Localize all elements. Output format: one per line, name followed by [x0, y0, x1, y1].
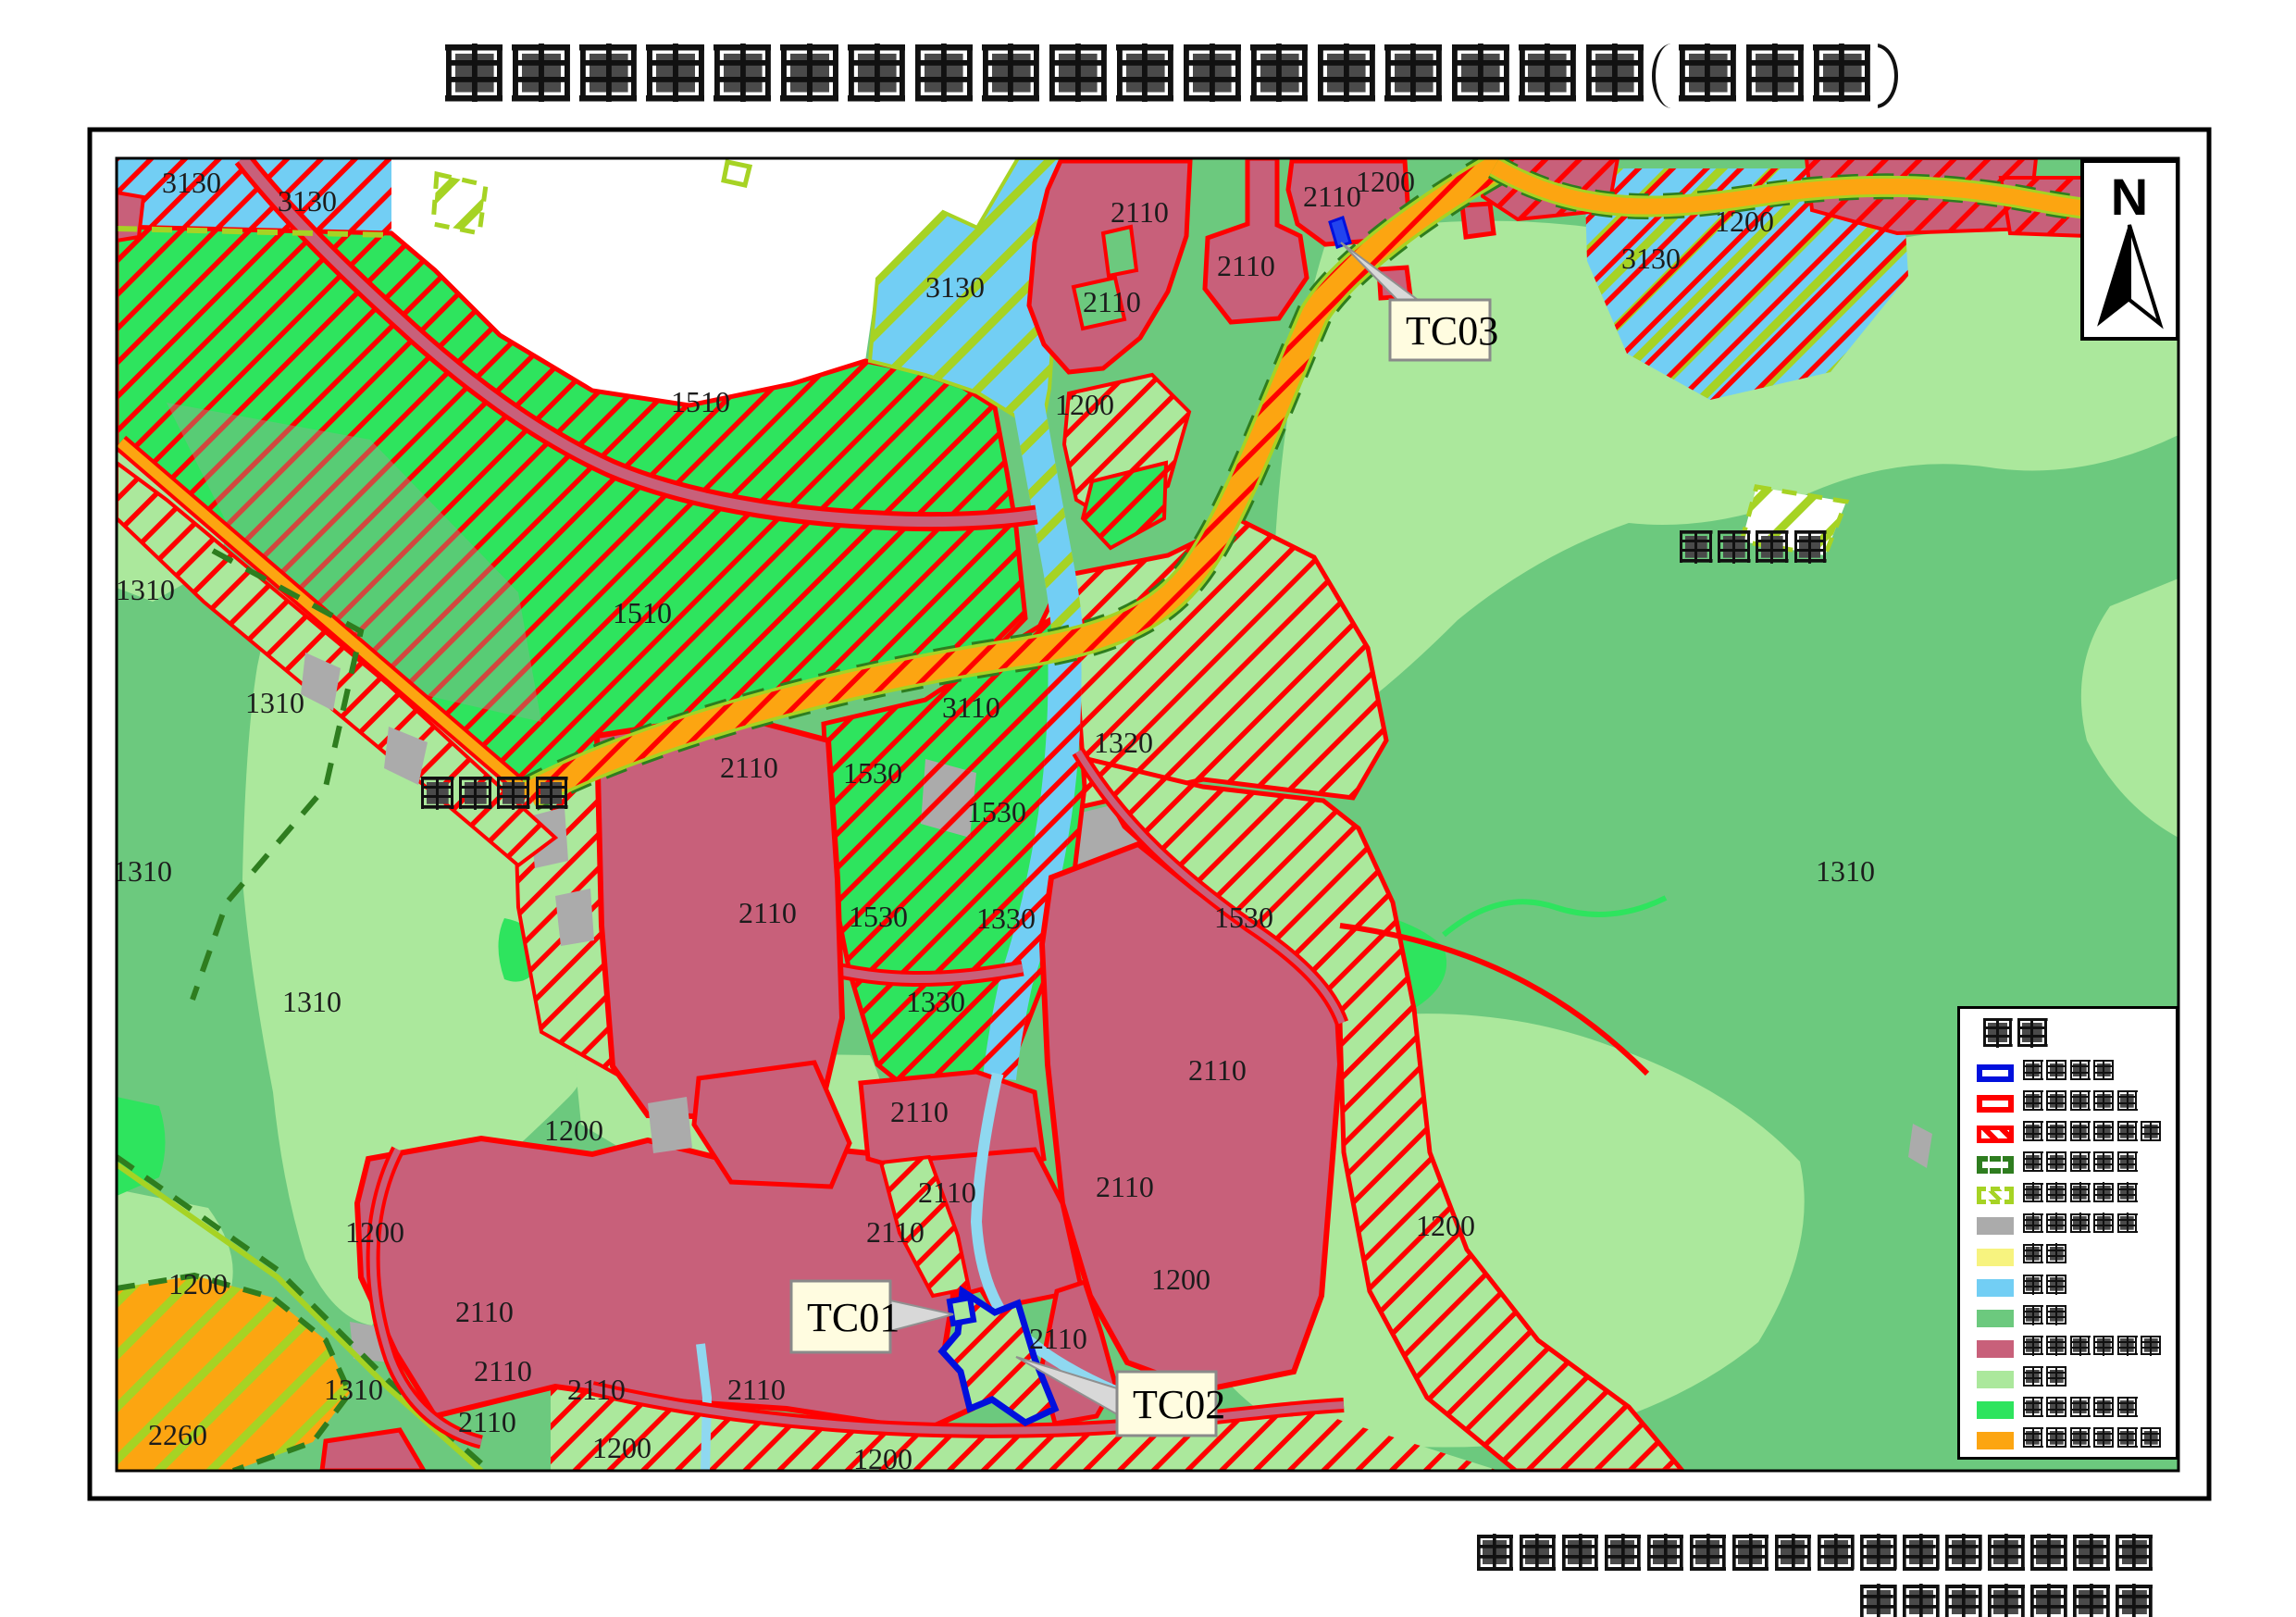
svg-text:2110: 2110: [455, 1295, 514, 1328]
svg-text:2110: 2110: [458, 1405, 516, 1438]
svg-text:1200: 1200: [1715, 205, 1774, 238]
svg-text:2110: 2110: [890, 1095, 949, 1128]
svg-text:2110: 2110: [738, 896, 797, 929]
svg-text:2110: 2110: [1096, 1170, 1154, 1203]
svg-text:2110: 2110: [866, 1215, 925, 1249]
svg-text:1200: 1200: [1416, 1209, 1475, 1242]
svg-text:1310: 1310: [1816, 854, 1875, 888]
svg-text:1330: 1330: [976, 902, 1036, 935]
svg-text:1510: 1510: [671, 385, 730, 418]
svg-text:TC03: TC03: [1406, 308, 1498, 354]
svg-text:2110: 2110: [720, 751, 778, 784]
svg-text:1510: 1510: [613, 596, 672, 629]
svg-text:1530: 1530: [1214, 901, 1273, 934]
svg-text:3130: 3130: [1621, 242, 1681, 275]
svg-text:1200: 1200: [168, 1267, 228, 1300]
svg-text:2110: 2110: [474, 1354, 532, 1387]
svg-text:2110: 2110: [918, 1175, 976, 1209]
svg-text:1200: 1200: [345, 1215, 404, 1249]
svg-text:3130: 3130: [278, 184, 337, 218]
svg-text:TC02: TC02: [1133, 1382, 1225, 1427]
svg-text:2110: 2110: [1111, 195, 1169, 229]
svg-text:1530: 1530: [849, 900, 908, 933]
svg-text:3130: 3130: [925, 270, 985, 304]
svg-text:3110: 3110: [942, 690, 1000, 724]
svg-text:1310: 1310: [116, 573, 175, 606]
svg-text:1200: 1200: [544, 1113, 603, 1147]
svg-text:2110: 2110: [1188, 1053, 1247, 1087]
svg-text:N: N: [2111, 168, 2148, 226]
svg-text:2110: 2110: [727, 1373, 786, 1406]
svg-text:2110: 2110: [1217, 249, 1275, 282]
svg-text:1320: 1320: [1094, 726, 1153, 759]
svg-text:2260: 2260: [148, 1418, 207, 1451]
svg-text:3130: 3130: [162, 166, 221, 199]
svg-text:2110: 2110: [1029, 1322, 1087, 1355]
svg-text:1310: 1310: [245, 686, 304, 719]
svg-text:1310: 1310: [282, 985, 341, 1018]
svg-text:1200: 1200: [1151, 1263, 1210, 1296]
svg-text:1310: 1310: [113, 854, 172, 888]
svg-text:1200: 1200: [1055, 388, 1114, 421]
svg-text:1530: 1530: [843, 756, 902, 790]
svg-text:1330: 1330: [906, 985, 965, 1018]
svg-text:1310: 1310: [324, 1373, 383, 1406]
svg-text:1200: 1200: [592, 1431, 652, 1464]
svg-text:2110: 2110: [1303, 180, 1361, 213]
svg-text:1200: 1200: [1356, 165, 1415, 198]
svg-text:1530: 1530: [967, 795, 1026, 828]
svg-text:2110: 2110: [567, 1373, 626, 1406]
svg-text:2110: 2110: [1083, 285, 1141, 318]
svg-text:TC01: TC01: [807, 1295, 900, 1340]
